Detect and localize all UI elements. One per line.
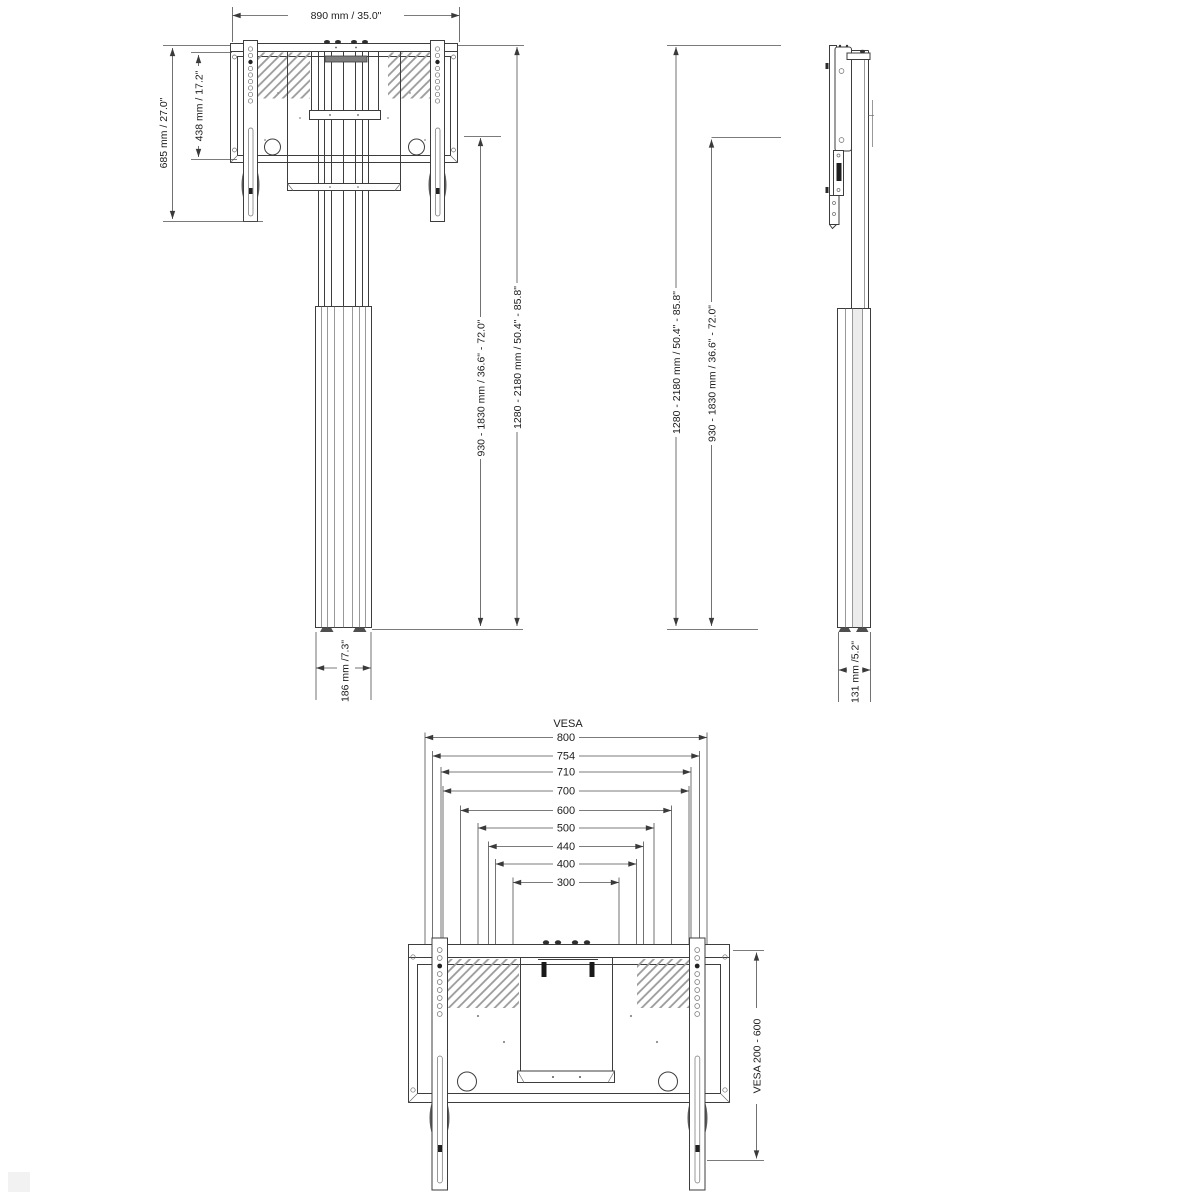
side-total-height-label: 1280 - 2180 mm / 50.4" - 85.8" bbox=[671, 291, 683, 434]
side-column-height-label: 930 - 1830 mm / 36.6" - 72.0" bbox=[707, 305, 719, 442]
vesa-width-800: 800 bbox=[557, 732, 575, 744]
front-hatch-left bbox=[257, 53, 310, 99]
rear-peg-left bbox=[542, 962, 547, 977]
front-rail-left bbox=[244, 41, 258, 222]
front-view bbox=[231, 40, 458, 632]
front-crossbar bbox=[310, 111, 381, 120]
front-bottom-bar bbox=[288, 184, 401, 191]
front-bracket-height-label: 685 mm / 27.0" bbox=[158, 97, 170, 168]
front-bracket-strip bbox=[325, 56, 367, 62]
technical-drawing-page: 890 mm / 35.0" 685 mm / 27.0" 438 mm / 1… bbox=[0, 0, 1200, 1200]
side-bracket-box bbox=[835, 47, 852, 151]
front-foot-right bbox=[353, 628, 367, 633]
vesa-width-500: 500 bbox=[557, 823, 575, 835]
vesa-width-710: 710 bbox=[557, 767, 575, 779]
rear-cable-hole-right bbox=[659, 1072, 678, 1091]
rear-view bbox=[409, 938, 730, 1190]
rear-rail-right bbox=[690, 938, 706, 1190]
vesa-width-300: 300 bbox=[557, 877, 575, 889]
front-cable-hole-right bbox=[409, 139, 425, 155]
side-foot-back bbox=[856, 628, 869, 633]
vesa-width-600: 600 bbox=[557, 805, 575, 817]
rear-vesa-range-label: VESA 200 - 600 bbox=[752, 1018, 764, 1093]
watermark bbox=[8, 1172, 30, 1192]
side-view bbox=[826, 45, 875, 632]
front-column-height-label: 930 - 1830 mm / 36.6" - 72.0" bbox=[476, 319, 488, 456]
rear-rail-left bbox=[432, 938, 448, 1190]
rear-cable-hole-left bbox=[458, 1072, 477, 1091]
side-base-depth-label: 131 mm /5.2" bbox=[850, 641, 862, 703]
rear-hatch-right bbox=[637, 959, 689, 1008]
front-cable-hole-left bbox=[265, 139, 281, 155]
front-total-height-label: 1280 - 2180 mm / 50.4" - 85.8" bbox=[512, 286, 524, 429]
vesa-width-400: 400 bbox=[557, 859, 575, 871]
rear-hatch-left bbox=[448, 959, 519, 1008]
side-inner-column bbox=[852, 51, 869, 309]
front-foot-left bbox=[320, 628, 334, 633]
front-plate-height-label: 438 mm / 17.2" bbox=[194, 70, 206, 141]
vesa-width-700: 700 bbox=[557, 786, 575, 798]
vesa-width-754: 754 bbox=[557, 751, 575, 763]
vesa-title: VESA bbox=[553, 718, 583, 730]
front-rail-right bbox=[431, 41, 445, 222]
vesa-width-440: 440 bbox=[557, 841, 575, 853]
rear-crossbar bbox=[518, 1071, 615, 1083]
stand-technical-drawing: 890 mm / 35.0" 685 mm / 27.0" 438 mm / 1… bbox=[0, 0, 1200, 1200]
front-width-label: 890 mm / 35.0" bbox=[311, 10, 382, 22]
side-foot-front bbox=[839, 628, 852, 633]
rear-view-vesa-ladder: VESA 800 754 710 700 600 500 440 bbox=[425, 718, 707, 944]
rear-peg-right bbox=[590, 962, 595, 977]
front-base-width-label: 186 mm /7.3" bbox=[340, 640, 352, 702]
side-top-connector bbox=[847, 53, 870, 60]
